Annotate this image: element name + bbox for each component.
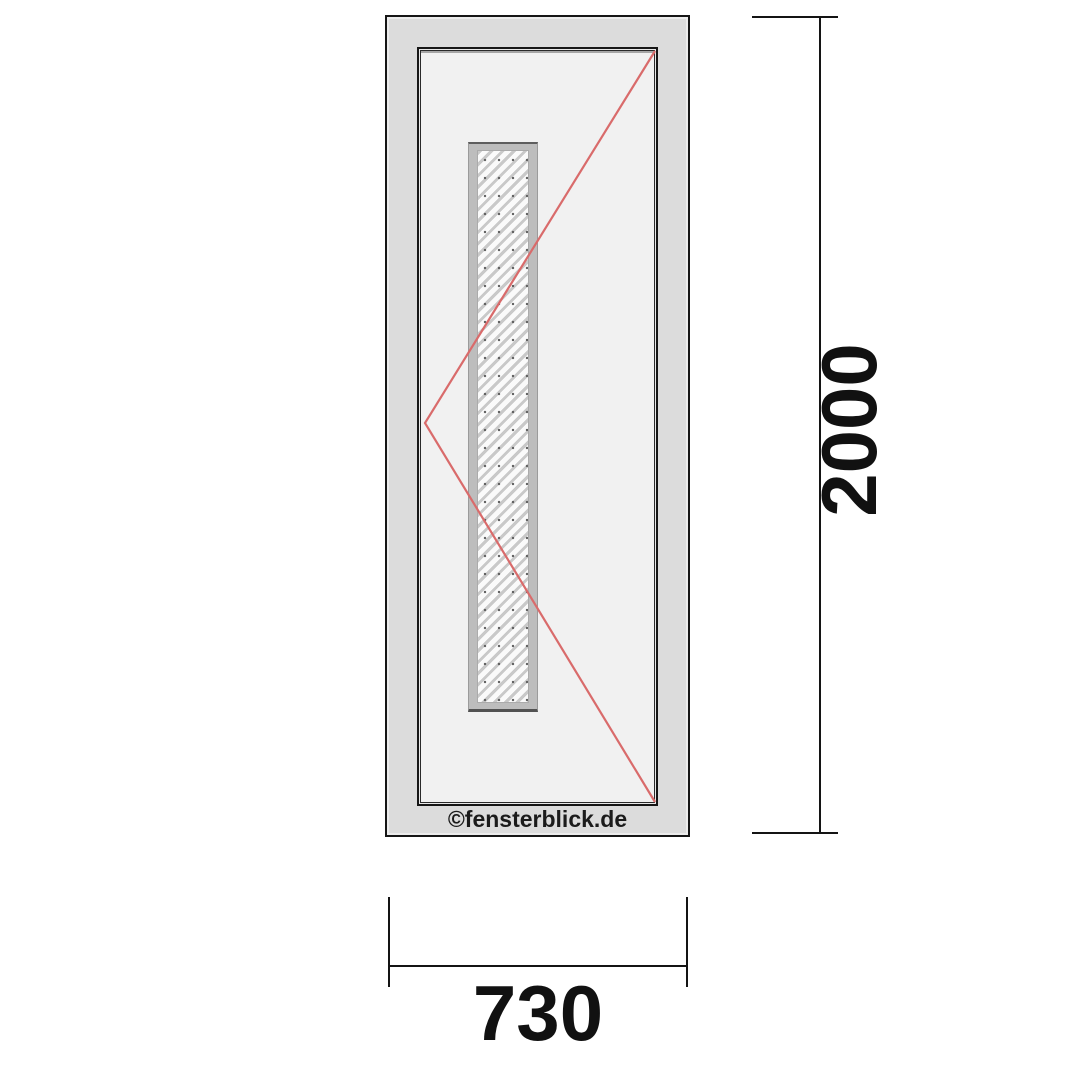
height-dimension-label: 2000 (810, 343, 888, 517)
width-dimension-label: 730 (473, 974, 603, 1052)
glass-strip-frame (468, 142, 538, 712)
height-extension-line-bottom (752, 832, 838, 834)
height-extension-line-top (752, 16, 838, 18)
width-dimension-line (388, 965, 688, 967)
glass-strip-hatch (477, 150, 529, 703)
width-extension-line-right (686, 897, 688, 987)
watermark-text: ©fensterblick.de (385, 805, 690, 834)
width-extension-line-left (388, 897, 390, 987)
door-technical-drawing: ©fensterblick.de 2000 730 (0, 0, 1080, 1080)
